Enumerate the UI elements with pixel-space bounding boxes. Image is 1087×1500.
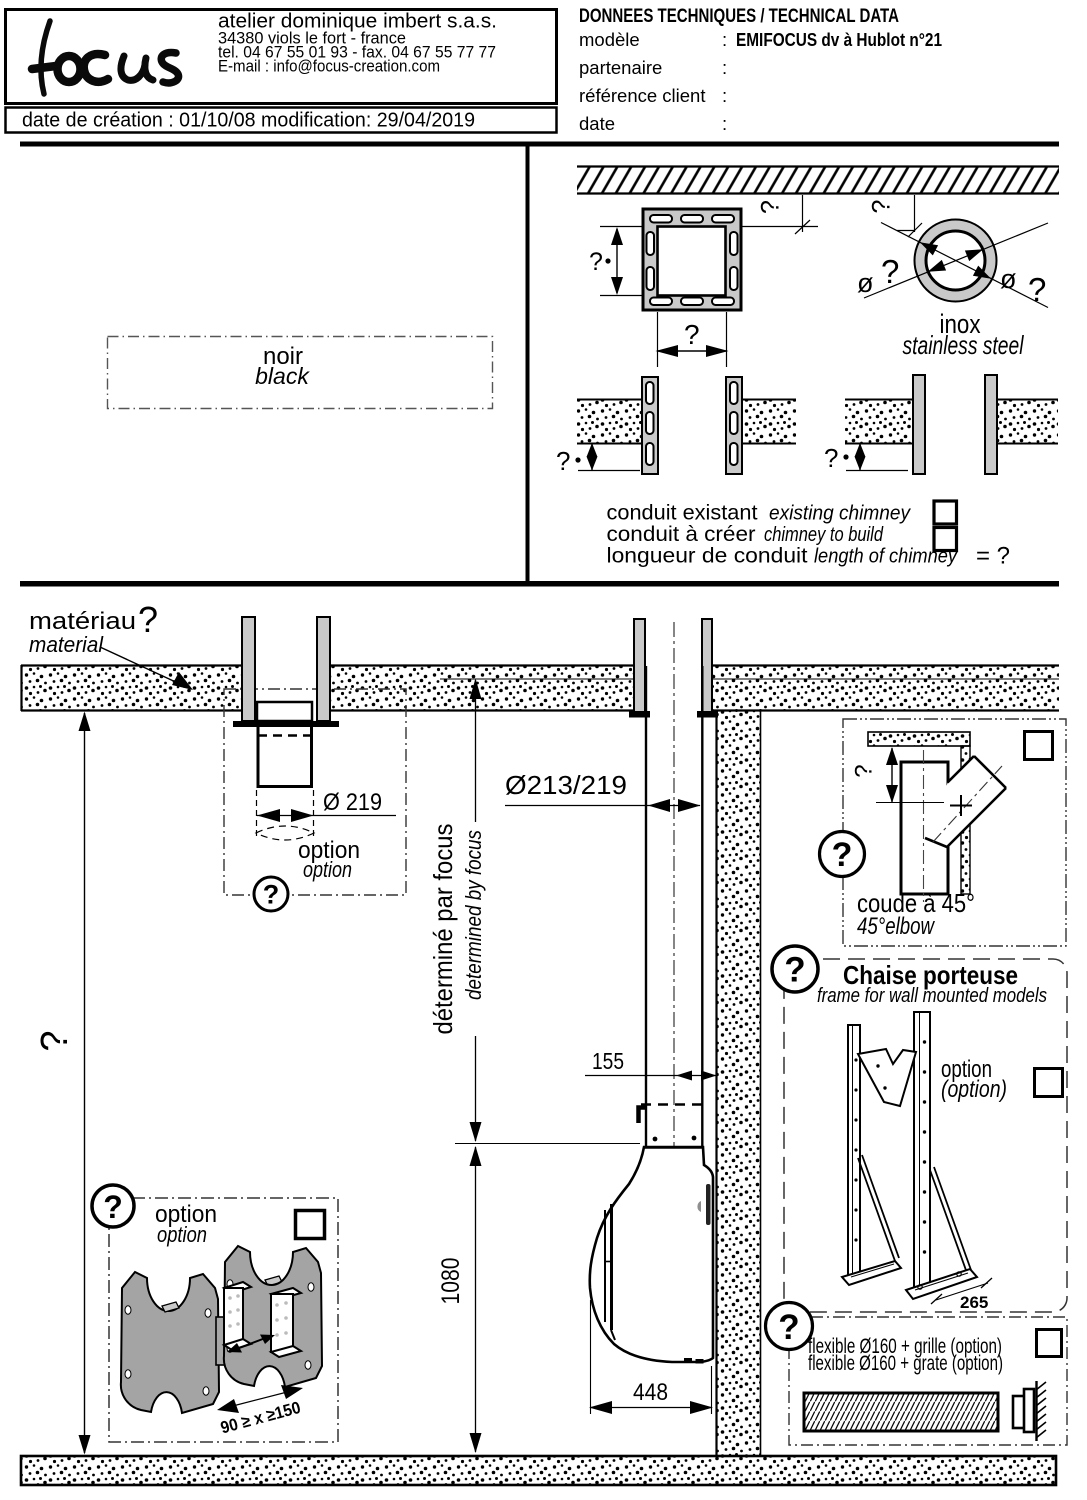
svg-text:155: 155 [592, 1048, 624, 1074]
svg-text:265: 265 [960, 1293, 988, 1312]
svg-text:?: ? [832, 836, 853, 874]
svg-text::: : [722, 85, 727, 106]
svg-text:?: ? [589, 248, 603, 276]
svg-text:date de création : 01/10/08 m: date de création : 01/10/08 modification… [22, 110, 475, 132]
svg-text:chimney to build: chimney to build [764, 523, 883, 546]
svg-text:?: ? [868, 200, 896, 214]
svg-text:conduit existant: conduit existant [607, 502, 758, 525]
svg-text:?: ? [1028, 271, 1046, 308]
svg-text:black: black [255, 363, 310, 389]
svg-text:déterminé par focus: déterminé par focus [428, 824, 458, 1035]
svg-text:?: ? [824, 443, 838, 473]
svg-text:date: date [579, 113, 615, 134]
svg-text:longueur de conduit: longueur de conduit [607, 545, 808, 568]
svg-text::: : [722, 113, 727, 134]
svg-text:modèle: modèle [579, 29, 640, 50]
svg-text:?: ? [684, 319, 700, 350]
svg-text:?: ? [757, 200, 785, 214]
svg-text:Ø 219: Ø 219 [323, 789, 382, 816]
svg-text:determined by focus: determined by focus [461, 830, 486, 1000]
svg-text:?: ? [103, 1189, 123, 1225]
svg-text:flexible Ø160 + grate (option): flexible Ø160 + grate (option) [808, 1352, 1003, 1375]
svg-text:?: ? [784, 951, 805, 990]
svg-text:?: ? [263, 880, 280, 910]
svg-text:ø: ø [1000, 264, 1017, 294]
svg-text:1080: 1080 [437, 1258, 465, 1305]
svg-text:?: ? [850, 764, 877, 777]
svg-text:E-mail : info@focus-creation.c: E-mail : info@focus-creation.com [218, 58, 440, 76]
svg-text:frame for wall mounted models: frame for wall mounted models [817, 985, 1047, 1007]
svg-text:DONNEES TECHNIQUES / TECHNICAL: DONNEES TECHNIQUES / TECHNICAL DATA [579, 6, 899, 27]
svg-text:option: option [157, 1222, 207, 1247]
svg-text:= ?: = ? [976, 543, 1010, 570]
svg-text:existing chimney: existing chimney [769, 502, 912, 525]
svg-text:?: ? [881, 253, 899, 290]
svg-text:?: ? [556, 446, 570, 476]
svg-text:matériau: matériau [29, 608, 136, 635]
svg-text:ø: ø [857, 268, 874, 298]
svg-text:45°elbow: 45°elbow [857, 913, 935, 940]
svg-text:length of chimney: length of chimney [814, 545, 959, 568]
svg-text:option: option [303, 857, 352, 882]
svg-text:(option): (option) [941, 1076, 1007, 1103]
svg-text:partenaire: partenaire [579, 57, 662, 78]
svg-text::: : [722, 57, 727, 78]
svg-text:stainless steel: stainless steel [903, 330, 1025, 360]
svg-text:material: material [29, 632, 104, 657]
svg-text:EMIFOCUS dv à Hublot n°21: EMIFOCUS dv à Hublot n°21 [736, 29, 942, 50]
svg-text:448: 448 [633, 1379, 668, 1406]
svg-text:référence client: référence client [579, 85, 705, 106]
svg-text:Ø213/219: Ø213/219 [505, 770, 627, 800]
svg-text:?: ? [778, 1308, 799, 1347]
svg-text:?: ? [138, 599, 158, 640]
svg-text:conduit à créer: conduit à créer [607, 523, 756, 546]
svg-text::: : [722, 29, 727, 50]
svg-text:?: ? [34, 1030, 76, 1051]
